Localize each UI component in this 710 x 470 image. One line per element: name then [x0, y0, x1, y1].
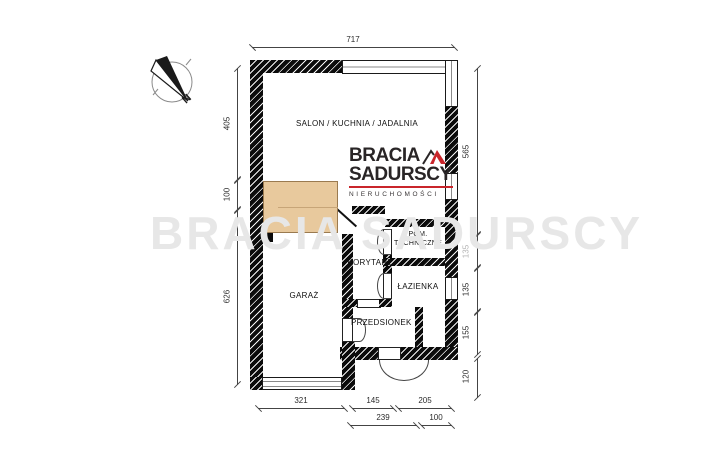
dim-label-bottom-321: 321 [281, 395, 321, 406]
brand-logo: BRACIA SADURSCY NIERUCHOMOŚCI [349, 146, 453, 198]
dim-line-bottom-100 [421, 425, 452, 426]
wall-stub-stairs [263, 233, 273, 242]
room-label-pom-techniczne: POM. TECHNICZNE [394, 230, 442, 248]
dim-label-bottom-205: 205 [405, 395, 445, 406]
dim-label-right-135a: 135 [461, 232, 472, 272]
dim-line-bottom-321 [258, 408, 345, 409]
dim-line-top [252, 47, 455, 48]
dim-label-top: 717 [333, 34, 373, 45]
room-label-lazienka: ŁAZIENKA [388, 282, 448, 291]
dim-line-bottom-239 [350, 425, 417, 426]
dim-label-bottom-100: 100 [416, 412, 456, 423]
brand-logo-line1: BRACIA [349, 146, 420, 165]
window-north [342, 60, 458, 74]
stairs-step-line [278, 207, 338, 208]
wall-garage-east-lower [342, 342, 355, 390]
dim-label-bottom-239: 239 [363, 412, 403, 423]
dim-label-bottom-145: 145 [353, 395, 393, 406]
brand-logo-rule [349, 186, 453, 188]
dim-label-right-565: 565 [461, 132, 472, 172]
wall-przedsionek-north-left [342, 299, 357, 307]
wall-north [250, 60, 342, 73]
brand-logo-line3: NIERUCHOMOŚCI [349, 191, 453, 198]
entrance-door-frame [378, 347, 401, 360]
window-east-corner [445, 60, 458, 107]
dim-label-left-405: 405 [222, 104, 233, 144]
dim-label-left-100: 100 [222, 175, 233, 215]
brand-roof-icon [422, 148, 446, 165]
dim-line-right-135a [477, 235, 478, 268]
dim-label-right-120: 120 [461, 357, 472, 397]
room-label-garaz: GARAŻ [274, 291, 334, 300]
brand-logo-line2: SADURSCY [349, 165, 453, 184]
room-label-przedsionek: PRZEDSIONEK [351, 318, 411, 327]
entrance-door-arc [379, 360, 429, 381]
room-label-salon: SALON / KUCHNIA / JADALNIA [267, 119, 447, 128]
dim-label-left-626: 626 [222, 277, 233, 317]
dim-label-right-135b: 135 [461, 270, 472, 310]
przedsionek-opening-frame [357, 299, 381, 308]
wall-south-garage-left [250, 377, 262, 390]
wall-przedsionek-north-right [379, 299, 392, 307]
dim-line-bottom-145 [352, 408, 394, 409]
dim-line-left-405 [237, 68, 238, 180]
dim-line-left-626 [237, 210, 238, 385]
dim-label-right-155: 155 [461, 313, 472, 353]
wall-west [250, 60, 263, 390]
compass-icon: N [142, 50, 206, 116]
dim-line-bottom-205 [398, 408, 452, 409]
pom-door-arc [377, 229, 391, 255]
room-label-korytarz: KORYTARZ [340, 258, 400, 267]
wall-korytarz-north [352, 206, 385, 214]
garage-door [262, 377, 342, 390]
floor-plan: N SALON / KUCHNIA / JADALNIA GARAŻ [0, 0, 710, 470]
dim-line-right-565 [477, 68, 478, 235]
dim-line-right-120 [477, 358, 478, 398]
wall-south-entry-right [401, 347, 458, 360]
wall-przedsionek-east [415, 307, 423, 347]
dim-line-right-155 [477, 312, 478, 355]
wall-pom-north [385, 219, 445, 227]
dim-line-left-100 [237, 180, 238, 210]
dim-line-right-135b [477, 268, 478, 312]
wall-east-2 [445, 200, 458, 277]
